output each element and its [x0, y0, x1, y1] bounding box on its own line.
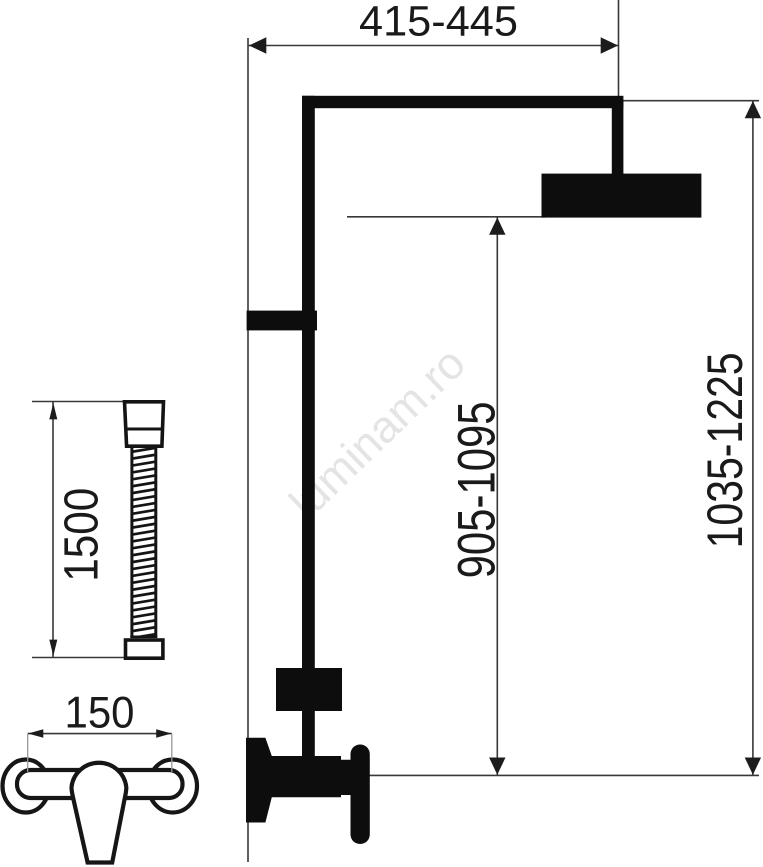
svg-text:1500: 1500	[56, 488, 109, 582]
svg-text:415-445: 415-445	[359, 0, 518, 46]
svg-text:1035-1225: 1035-1225	[697, 352, 753, 548]
svg-text:150: 150	[65, 688, 135, 737]
svg-text:905-1095: 905-1095	[448, 401, 507, 578]
